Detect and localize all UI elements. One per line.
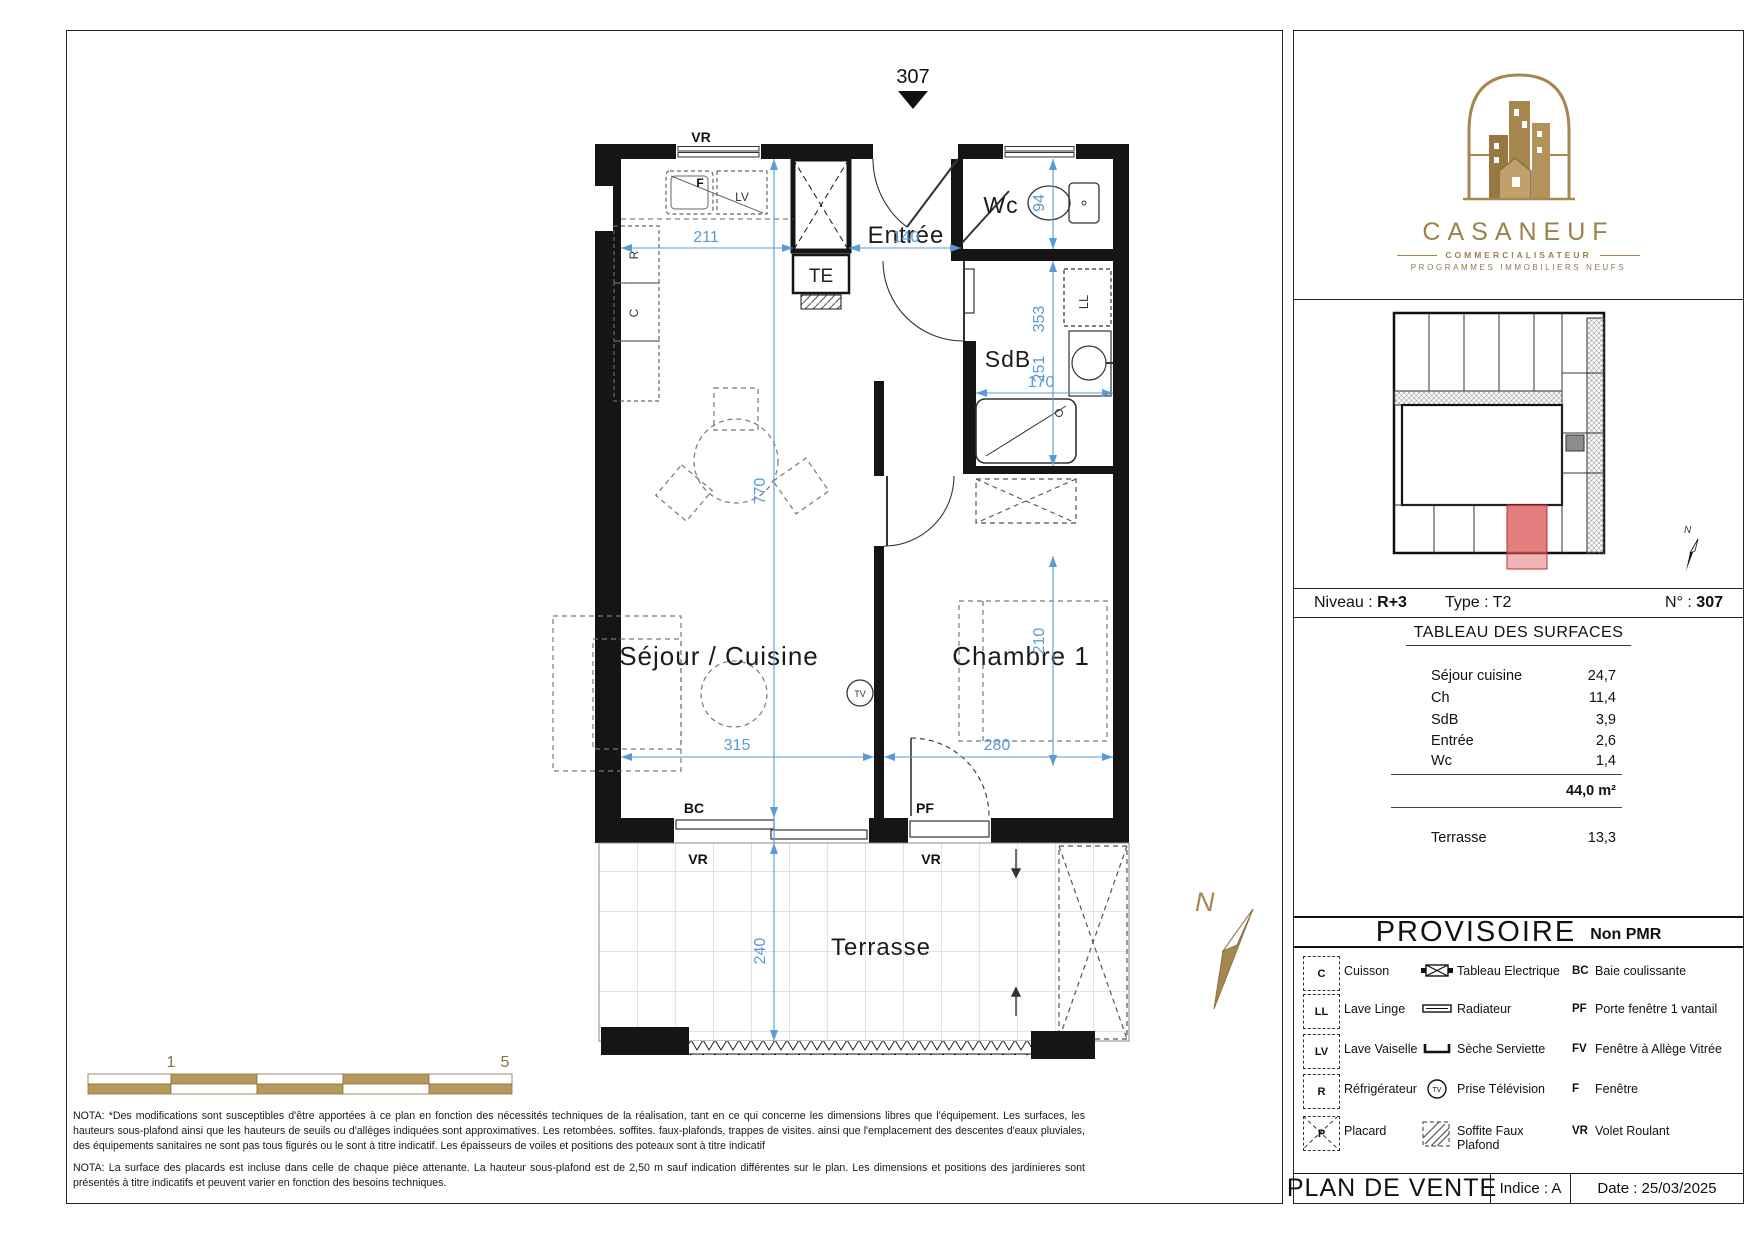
site-plan-thumbnail: N <box>1294 301 1743 589</box>
surfaces-total: 44,0 m² <box>1566 783 1616 799</box>
te-label: TE <box>809 266 833 287</box>
room-label-wc: Wc <box>983 192 1018 218</box>
surface-row-label: Wc <box>1431 753 1452 769</box>
fridge-r-label: R <box>627 250 641 259</box>
legend-abbr-label: Baie coulissante <box>1595 964 1737 978</box>
surface-row: Wc1,4 <box>1431 753 1616 769</box>
logo-wordmark: CASANEUF <box>1294 218 1743 247</box>
casaneuf-logo-icon <box>1449 59 1589 209</box>
niveau-label: Niveau : <box>1314 594 1377 611</box>
num-label: N° : <box>1665 594 1696 611</box>
legend-abbr: F <box>1572 1083 1579 1095</box>
pf-label: PF <box>916 800 934 816</box>
status-banner: PROVISOIRE Non PMR <box>1294 916 1743 948</box>
surface-row: Ch11,4 <box>1431 690 1616 706</box>
legend-abbr-label: Porte fenêtre 1 vantail <box>1595 1002 1737 1016</box>
surface-row-label: Ch <box>1431 690 1450 706</box>
legend-code: LV <box>1315 1046 1328 1058</box>
furniture <box>553 388 1107 771</box>
legend-code-label: Réfrigérateur <box>1344 1082 1417 1096</box>
tableau-electrique-icon <box>1421 960 1453 980</box>
dim-240: 240 <box>752 938 769 965</box>
legend-code-label: Lave Vaiselle <box>1344 1042 1417 1056</box>
logo-rule-right <box>1600 255 1640 256</box>
nota-paragraph-1: NOTA: *Des modifications sont susceptibl… <box>73 1109 1085 1154</box>
surface-row-label: Séjour cuisine <box>1431 668 1522 684</box>
legend-abbr: VR <box>1572 1125 1588 1137</box>
vr-bc-label: VR <box>688 851 707 867</box>
vr-pf-label: VR <box>921 851 940 867</box>
unit-marker: 307 <box>896 66 929 109</box>
legend-row: P Placard Soffite Faux Plafond VR Volet … <box>1294 1116 1743 1154</box>
legend-abbr-label: Fenêtre à Allège Vitrée <box>1595 1042 1737 1056</box>
legend-code: R <box>1318 1086 1326 1098</box>
surfaces-divider <box>1391 807 1622 808</box>
nota-paragraph-2: NOTA: La surface des placards est inclus… <box>73 1161 1085 1191</box>
wall-notch <box>595 186 613 231</box>
surfaces-section: TABLEAU DES SURFACES Séjour cuisine24,7 … <box>1294 618 1743 916</box>
floor-plan-drawing: 307 <box>67 31 1280 1201</box>
dim-353: 353 <box>1031 306 1048 333</box>
seche-serviette-icon <box>1421 1038 1453 1058</box>
room-label-sdb: SdB <box>985 346 1031 372</box>
north-letter: N <box>1195 887 1215 917</box>
closet <box>976 479 1076 523</box>
status-main: PROVISOIRE <box>1376 916 1577 949</box>
walls <box>595 144 1129 843</box>
soffite-faux-plafond-icon <box>1421 1120 1453 1150</box>
ll-label: LL <box>1076 295 1091 309</box>
unit-marker-triangle-icon <box>898 91 928 109</box>
dim-315: 315 <box>724 737 751 754</box>
lv-label: LV <box>735 190 749 204</box>
surface-row-value: 3,9 <box>1596 712 1616 728</box>
dim-280: 280 <box>984 737 1011 754</box>
status-pmr: Non PMR <box>1590 926 1661 944</box>
terrace-row: Terrasse13,3 <box>1431 830 1616 846</box>
svg-text:TV: TV <box>1433 1087 1442 1094</box>
room-label-sejour: Séjour / Cuisine <box>619 641 819 671</box>
legend-icon-label: Soffite Faux Plafond <box>1457 1124 1569 1153</box>
title-block-panel: CASANEUF COMMERCIALISATEUR PROGRAMMES IM… <box>1293 30 1744 1204</box>
north-arrow: N <box>1195 887 1253 1009</box>
legend-icon-label: Prise Télévision <box>1457 1082 1569 1096</box>
dim-94: 94 <box>1031 194 1048 212</box>
scale-end-label: 5 <box>501 1054 510 1071</box>
surface-row-value: 11,4 <box>1589 690 1616 706</box>
legend-code-box: R <box>1303 1074 1340 1109</box>
legend-abbr: PF <box>1572 1003 1587 1015</box>
legend-abbr: BC <box>1572 965 1589 977</box>
surface-row-value: 24,7 <box>1588 668 1616 684</box>
dim-170: 170 <box>1028 374 1055 391</box>
legend-row: LV Lave Vaiselle Sèche Serviette FV Fenê… <box>1294 1034 1743 1072</box>
footer-indice: Indice : A <box>1491 1174 1571 1203</box>
dim-770: 770 <box>752 478 769 505</box>
legend-row: C Cuisson Tableau Electrique BC Baie cou… <box>1294 956 1743 994</box>
legend-code: P <box>1318 1128 1325 1140</box>
type-value: T2 <box>1493 594 1512 611</box>
legend-code-box-placard: P <box>1303 1116 1340 1151</box>
vr-top-label: VR <box>691 129 710 145</box>
type-cell: Type : T2 <box>1445 594 1511 612</box>
surface-row-label: SdB <box>1431 712 1458 728</box>
terrace-planter-edge <box>689 1041 1031 1055</box>
legend-abbr-label: Volet Roulant <box>1595 1124 1737 1138</box>
footer-bar: PLAN DE VENTE Indice : A Date : 25/03/20… <box>1294 1173 1743 1203</box>
surfaces-divider <box>1391 774 1622 775</box>
tv-socket-icon: TV <box>847 680 873 706</box>
site-plan-north-letter: N <box>1684 525 1692 536</box>
terrace-value: 13,3 <box>1588 830 1616 846</box>
logo-subtitle: COMMERCIALISATEUR <box>1445 250 1591 260</box>
dim-211: 211 <box>693 229 719 246</box>
legend-code-box: C <box>1303 956 1340 991</box>
legend-code-box: LV <box>1303 1034 1340 1069</box>
scale-bar <box>88 1074 512 1094</box>
legend-icon-label: Radiateur <box>1457 1002 1569 1016</box>
surface-row: Séjour cuisine24,7 <box>1431 668 1616 684</box>
footer-date: Date : 25/03/2025 <box>1571 1174 1743 1203</box>
surface-row: SdB3,9 <box>1431 712 1616 728</box>
logo-rule-left <box>1397 255 1437 256</box>
niveau-value: R+3 <box>1377 594 1407 611</box>
dim-140: 140 <box>893 229 920 246</box>
legend-code-label: Lave Linge <box>1344 1002 1405 1016</box>
tv-socket-label: TV <box>854 689 866 699</box>
room-label-terrasse: Terrasse <box>831 934 931 961</box>
bc-label: BC <box>684 800 704 816</box>
surface-row-value: 1,4 <box>1596 753 1616 769</box>
legend-abbr-label: Fenêtre <box>1595 1082 1737 1096</box>
logo-subtitle-row: COMMERCIALISATEUR <box>1294 250 1743 260</box>
legend-code: C <box>1318 968 1326 980</box>
prise-television-icon: TV <box>1421 1078 1453 1100</box>
surface-row-label: Entrée <box>1431 733 1474 749</box>
type-label: Type : <box>1445 594 1493 611</box>
sink-f-label: F <box>696 176 703 190</box>
num-value: 307 <box>1696 594 1723 611</box>
num-cell: N° : 307 <box>1665 594 1723 612</box>
radiateur-icon <box>1421 998 1453 1018</box>
dim-210: 210 <box>1031 628 1048 655</box>
room-label-chambre: Chambre 1 <box>952 641 1090 671</box>
legend-row: LL Lave Linge Radiateur PF Porte fenêtre… <box>1294 994 1743 1032</box>
logo-tagline: PROGRAMMES IMMOBILIERS NEUFS <box>1294 263 1743 272</box>
legend-icon-label: Sèche Serviette <box>1457 1042 1569 1056</box>
terrace-label: Terrasse <box>1431 830 1487 846</box>
cuisson-c-label: C <box>627 308 641 317</box>
unit-info-row: Niveau : R+3 Type : T2 N° : 307 <box>1294 589 1743 618</box>
legend-code: LL <box>1315 1006 1328 1018</box>
kitchen-fixtures <box>614 171 793 401</box>
legend-row: R Réfrigérateur TV Prise Télévision F Fe… <box>1294 1074 1743 1112</box>
legend-abbr: FV <box>1572 1043 1587 1055</box>
scale-start-label: 1 <box>167 1054 176 1071</box>
unit-number-label: 307 <box>896 66 929 88</box>
legend-code-box: LL <box>1303 994 1340 1029</box>
legend-code-label: Cuisson <box>1344 964 1389 978</box>
legend-section: C Cuisson Tableau Electrique BC Baie cou… <box>1294 948 1743 1173</box>
logo-section: CASANEUF COMMERCIALISATEUR PROGRAMMES IM… <box>1294 31 1743 300</box>
legend-code-label: Placard <box>1344 1124 1386 1138</box>
site-plan-compass: N <box>1684 525 1698 571</box>
floor-plan-sheet: 307 <box>66 30 1283 1204</box>
surfaces-title: TABLEAU DES SURFACES <box>1406 624 1632 646</box>
surface-row-value: 2,6 <box>1596 733 1616 749</box>
surface-row: Entrée2,6 <box>1431 733 1616 749</box>
site-plan-section: N <box>1294 301 1743 589</box>
niveau-cell: Niveau : R+3 <box>1314 594 1407 612</box>
footer-title: PLAN DE VENTE <box>1294 1174 1491 1203</box>
legend-icon-label: Tableau Electrique <box>1457 964 1569 978</box>
plan-de-vente-page: 307 <box>0 0 1754 1241</box>
